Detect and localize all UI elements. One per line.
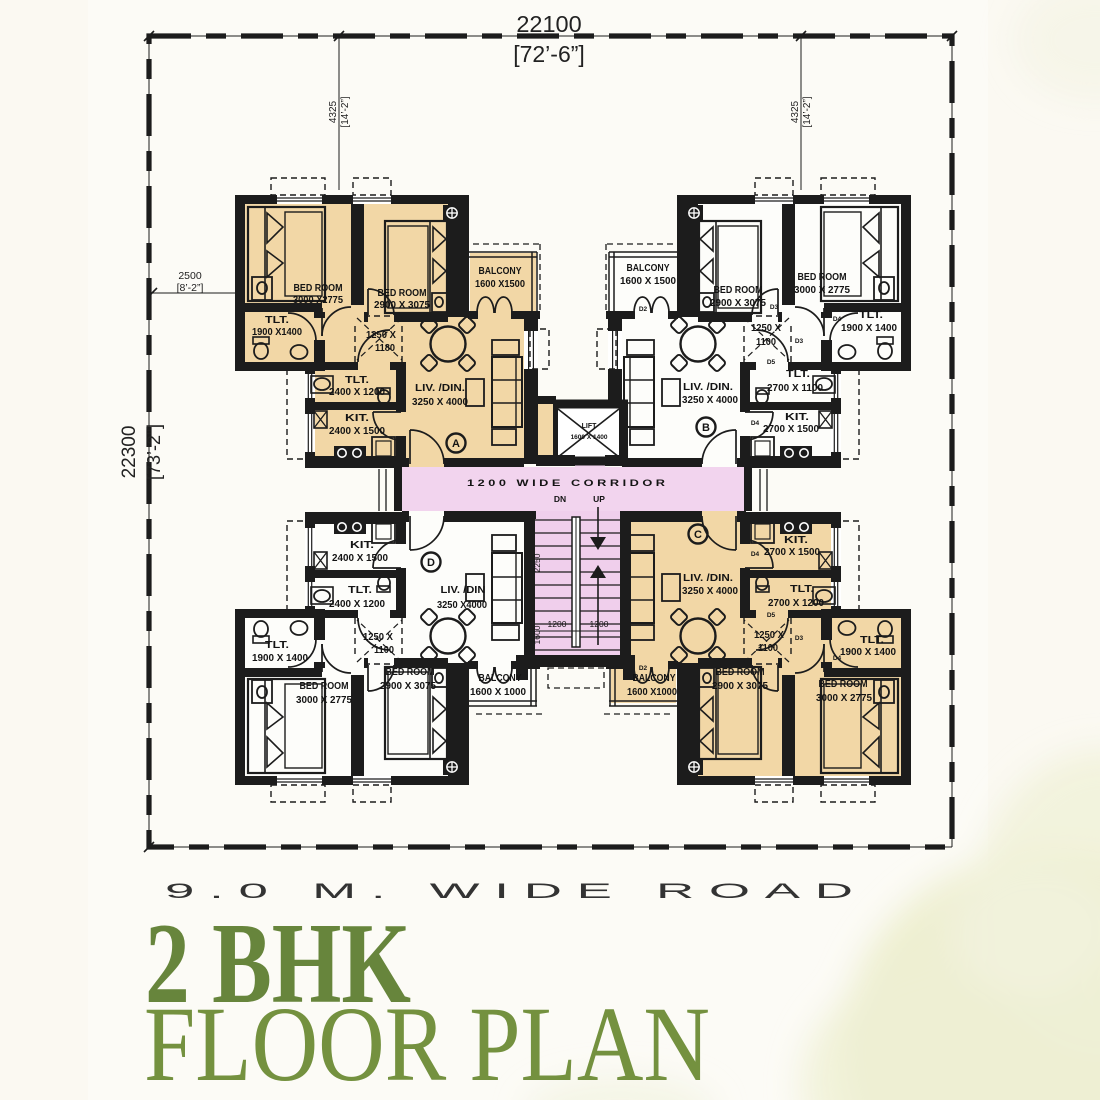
svg-text:3000 X 2775: 3000 X 2775	[296, 695, 353, 706]
svg-text:1100: 1100	[756, 337, 777, 348]
svg-text:D4: D4	[833, 655, 842, 662]
svg-text:3250 X 4000: 3250 X 4000	[682, 586, 739, 597]
svg-text:2700 X 1500: 2700 X 1500	[764, 547, 821, 558]
svg-text:3250 X4000: 3250 X4000	[437, 600, 488, 611]
svg-text:BED ROOM: BED ROOM	[819, 679, 868, 690]
svg-text:2400 X 1200: 2400 X 1200	[329, 599, 386, 610]
svg-text:BED ROOM: BED ROOM	[386, 667, 435, 678]
svg-text:D3: D3	[795, 338, 804, 345]
svg-text:FLOOR PLAN: FLOOR PLAN	[144, 986, 710, 1100]
svg-text:LIV. /DIN: LIV. /DIN	[441, 585, 486, 596]
svg-text:D3: D3	[770, 304, 779, 311]
svg-text:2500: 2500	[178, 270, 202, 282]
svg-text:D2: D2	[639, 306, 648, 313]
svg-text:1900 X 1400: 1900 X 1400	[252, 653, 309, 664]
svg-text:KIT.: KIT.	[784, 535, 808, 546]
svg-text:2700 X 1200: 2700 X 1200	[768, 598, 825, 609]
svg-text:3000 X 2775: 3000 X 2775	[816, 693, 873, 704]
svg-text:2900 X 3075: 2900 X 3075	[374, 300, 431, 311]
svg-text:UP: UP	[593, 494, 605, 504]
svg-text:D4: D4	[751, 551, 760, 558]
svg-text:BED ROOM: BED ROOM	[798, 272, 847, 283]
svg-text:BED ROOM: BED ROOM	[300, 681, 349, 692]
svg-text:KIT.: KIT.	[350, 540, 374, 551]
svg-text:1 2 0 0 W I D E C O R R I: 1 2 0 0 W I D E C O R R I D O R	[467, 478, 665, 489]
svg-text:1100: 1100	[374, 645, 395, 656]
svg-text:TLT.: TLT.	[790, 584, 814, 595]
svg-text:1900 X 1400: 1900 X 1400	[841, 323, 898, 334]
svg-text:TLT.: TLT.	[786, 369, 810, 380]
svg-text:C: C	[694, 529, 702, 541]
svg-text:BALCONY: BALCONY	[633, 673, 676, 684]
svg-text:1900 X1400: 1900 X1400	[252, 327, 303, 338]
svg-text:TLT.: TLT.	[265, 640, 289, 651]
svg-text:BED ROOM: BED ROOM	[716, 667, 765, 678]
svg-text:LIV. /DIN.: LIV. /DIN.	[683, 573, 733, 584]
svg-text:2250: 2250	[532, 553, 542, 572]
svg-text:4325: 4325	[790, 100, 801, 123]
svg-text:3250 X 4000: 3250 X 4000	[412, 397, 469, 408]
svg-text:1600: 1600	[532, 625, 542, 644]
svg-text:B: B	[702, 422, 710, 434]
svg-text:KIT.: KIT.	[785, 412, 809, 423]
svg-text:LIFT: LIFT	[582, 423, 597, 430]
svg-text:2700 X 1100: 2700 X 1100	[767, 383, 824, 394]
svg-text:4325: 4325	[328, 100, 339, 123]
svg-text:LIV. /DIN.: LIV. /DIN.	[415, 383, 465, 394]
svg-text:1600 X 1000: 1600 X 1000	[470, 687, 527, 698]
svg-text:BED ROOM: BED ROOM	[714, 285, 763, 296]
svg-text:TLT.: TLT.	[345, 375, 369, 386]
svg-text:1600 X 1400: 1600 X 1400	[571, 434, 608, 441]
svg-text:1600 X 1500: 1600 X 1500	[620, 276, 677, 287]
svg-text:BED ROOM: BED ROOM	[294, 283, 343, 294]
svg-text:BALCONY: BALCONY	[627, 263, 670, 274]
svg-text:2700 X 1500: 2700 X 1500	[763, 424, 820, 435]
svg-text:DN: DN	[554, 494, 566, 504]
svg-text:1100: 1100	[758, 643, 779, 654]
svg-text:22300: 22300	[119, 426, 140, 479]
svg-text:A: A	[452, 438, 460, 450]
svg-text:1600 X1000: 1600 X1000	[627, 687, 678, 698]
svg-text:2900 X 3075: 2900 X 3075	[712, 681, 769, 692]
svg-text:TLT.: TLT.	[265, 315, 289, 326]
svg-text:1900 X 1400: 1900 X 1400	[840, 647, 897, 658]
svg-text:1250 X: 1250 X	[754, 630, 784, 641]
svg-text:1250 X: 1250 X	[366, 330, 396, 341]
svg-text:D5: D5	[767, 612, 776, 619]
svg-text:KIT.: KIT.	[345, 413, 369, 424]
svg-text:TLT.: TLT.	[348, 585, 372, 596]
svg-text:22100: 22100	[516, 11, 581, 37]
svg-text:LIV. /DIN.: LIV. /DIN.	[683, 382, 733, 393]
svg-text:2900 X 3075: 2900 X 3075	[710, 298, 767, 309]
svg-text:1600 X1500: 1600 X1500	[475, 279, 526, 290]
svg-text:D: D	[427, 557, 435, 569]
svg-text:D4: D4	[833, 316, 842, 323]
svg-text:[73’-2”]: [73’-2”]	[144, 424, 164, 480]
svg-text:1250 X: 1250 X	[751, 323, 781, 334]
svg-text:D4: D4	[751, 420, 760, 427]
svg-text:3250 X 4000: 3250 X 4000	[682, 395, 739, 406]
svg-text:[8’-2”]: [8’-2”]	[177, 282, 204, 294]
svg-text:2400 X 1500: 2400 X 1500	[332, 553, 389, 564]
svg-text:BALCONY: BALCONY	[479, 266, 522, 277]
svg-text:1250 X: 1250 X	[363, 632, 393, 643]
svg-text:D2: D2	[639, 665, 648, 672]
svg-text:TLT.: TLT.	[860, 635, 884, 646]
svg-text:2400 X 1200: 2400 X 1200	[329, 387, 386, 398]
svg-text:1200: 1200	[548, 619, 567, 629]
svg-text:BED ROOM: BED ROOM	[378, 288, 427, 299]
svg-text:TLT.: TLT.	[859, 310, 883, 321]
svg-text:[14’-2”]: [14’-2”]	[802, 96, 813, 127]
svg-text:3000 X2775: 3000 X2775	[293, 295, 344, 306]
svg-text:BALCONY: BALCONY	[479, 673, 522, 684]
svg-text:2900 X 3075: 2900 X 3075	[380, 681, 437, 692]
svg-text:1180: 1180	[375, 343, 396, 354]
svg-text:D3: D3	[795, 635, 804, 642]
svg-text:D5: D5	[767, 359, 776, 366]
svg-text:1200: 1200	[590, 619, 609, 629]
svg-text:3000 X 2775: 3000 X 2775	[794, 285, 851, 296]
svg-text:[72’-6”]: [72’-6”]	[513, 41, 585, 67]
svg-text:[14’-2”]: [14’-2”]	[340, 96, 351, 127]
svg-text:2400 X 1500: 2400 X 1500	[329, 426, 386, 437]
